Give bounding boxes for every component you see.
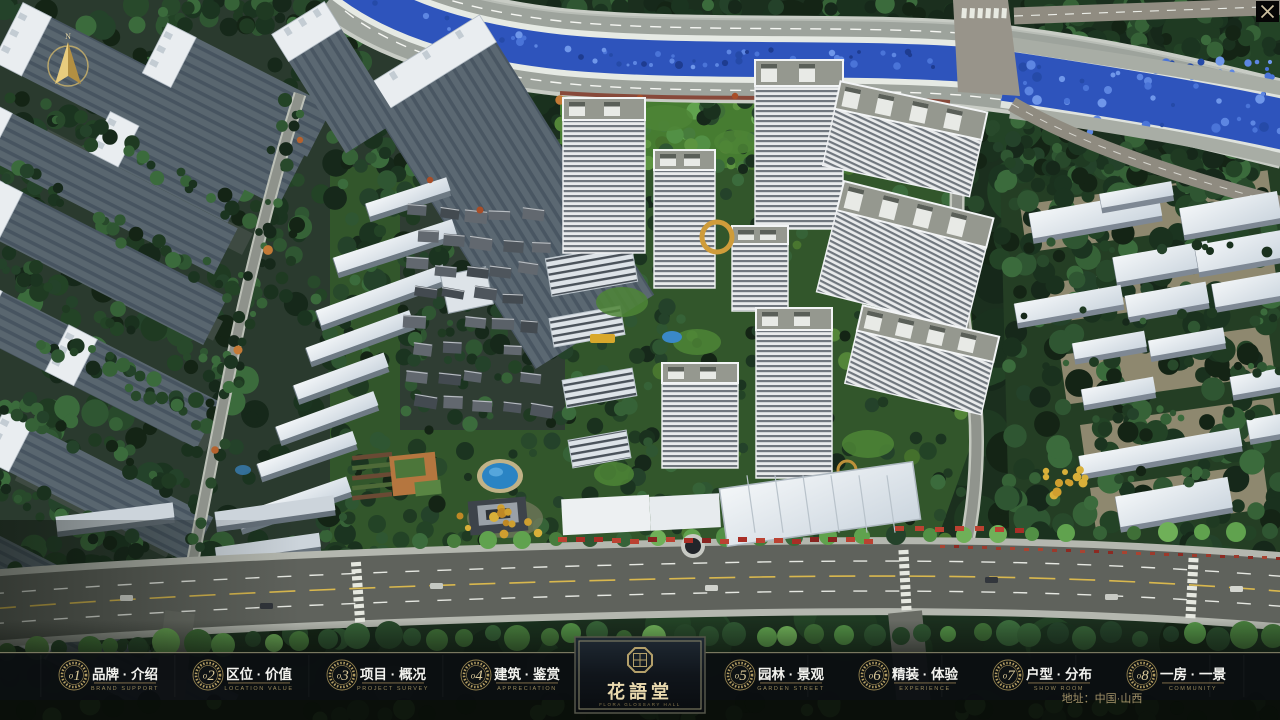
svg-text:精装 · 体验: 精装 · 体验 (892, 666, 958, 682)
svg-text:5: 5 (739, 668, 747, 684)
svg-text:项目 · 概况: 项目 · 概况 (360, 666, 426, 682)
svg-text:2: 2 (207, 668, 215, 684)
svg-text:APPRECIATION: APPRECIATION (497, 686, 557, 692)
svg-text:SHOW ROOM: SHOW ROOM (1034, 686, 1084, 692)
svg-text:1: 1 (73, 668, 81, 684)
svg-text:户型 · 分布: 户型 · 分布 (1026, 666, 1092, 682)
svg-text:GARDEN STREET: GARDEN STREET (757, 686, 825, 692)
svg-text:建筑 · 鉴赏: 建筑 · 鉴赏 (493, 666, 560, 682)
svg-text:一房 · 一景: 一房 · 一景 (1160, 666, 1226, 682)
svg-text:品牌 · 介绍: 品牌 · 介绍 (92, 666, 158, 682)
svg-text:BRAND SUPPORT: BRAND SUPPORT (91, 686, 159, 692)
svg-text:COMMUNITY: COMMUNITY (1169, 686, 1217, 692)
svg-text:花語堂: 花語堂 (607, 681, 673, 702)
svg-text:园林 · 景观: 园林 · 景观 (758, 666, 824, 682)
svg-text:LOCATION VALUE: LOCATION VALUE (224, 686, 293, 692)
svg-text:4: 4 (475, 668, 483, 684)
svg-text:FLORA GLOSSARY HALL: FLORA GLOSSARY HALL (599, 702, 681, 707)
svg-text:区位 · 价值: 区位 · 价值 (226, 666, 292, 682)
svg-text:EXPERIENCE: EXPERIENCE (899, 686, 950, 692)
svg-text:6: 6 (873, 668, 881, 684)
svg-text:N: N (65, 32, 71, 41)
svg-text:PROJECT SURVEY: PROJECT SURVEY (357, 686, 429, 692)
svg-text:地址：中国·山西: 地址：中国·山西 (1062, 691, 1143, 705)
svg-text:3: 3 (340, 668, 349, 684)
svg-text:8: 8 (1141, 668, 1149, 684)
